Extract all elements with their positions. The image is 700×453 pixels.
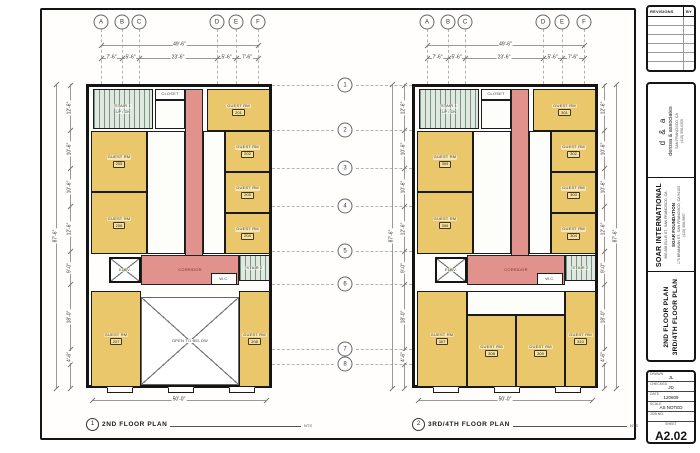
plan-3rd-4th-floor-bath-bottom xyxy=(467,291,565,315)
dim-side-seg-label: 18'-0" xyxy=(68,309,73,324)
plan-2nd-floor-stair-1: STAIR 1UP / DN xyxy=(93,89,153,129)
cap-scale: NTS xyxy=(630,423,638,428)
client-phone: (415) 358-9897 xyxy=(682,181,686,269)
bay-window xyxy=(555,387,581,393)
plan-2nd-floor-guest-rm-207: GUEST RM207 xyxy=(91,291,141,387)
plan-3rd-4th-floor-bath-top xyxy=(481,100,511,129)
job-row: JOB NO. xyxy=(648,412,694,422)
dim-side-seg-label: 10'-6" xyxy=(402,142,407,157)
grid-bubble-row-6: 6 xyxy=(338,277,353,292)
revision-row xyxy=(648,62,694,71)
caption-line xyxy=(513,425,627,427)
grid-bubble-col-F: F xyxy=(251,15,266,30)
plan-3rd-4th-floor-bath-left xyxy=(473,131,511,254)
plan-3rd-4th-floor-stair-2: STAIR 2 xyxy=(565,255,596,281)
dim-bottom-overall-label: 50'-0" xyxy=(172,398,187,403)
rlabel: ELEV. xyxy=(444,268,458,272)
revision-row xyxy=(648,53,694,62)
plan-3rd-4th-floor-guest-rm-310: GUEST RM310 xyxy=(565,291,596,387)
grid-row-leader xyxy=(272,251,334,252)
caption-line xyxy=(170,425,301,427)
rlabel: GUEST RM xyxy=(242,333,267,337)
plan-2nd-floor-wc: W.C. xyxy=(211,273,237,285)
caption-plan-3rd-4th-floor: 23RD/4TH FLOOR PLANNTS xyxy=(412,418,638,430)
rlabel: CLOSET xyxy=(160,92,179,96)
dim-side-seg-label: 18'-0" xyxy=(602,309,607,324)
plan-3rd-4th-floor-wc: W.C. xyxy=(537,273,563,285)
grid-bubble-row-4: 4 xyxy=(338,199,353,214)
caption-number: 2 xyxy=(412,418,425,431)
plan-3rd-4th-floor-guest-rm-304: GUEST RM304 xyxy=(551,213,596,254)
dim-side-overall-label: 87'-6" xyxy=(54,229,59,244)
rnum: 202 xyxy=(241,151,254,158)
rnum: 205 xyxy=(113,161,126,168)
dim-side-seg-label: 10'-6" xyxy=(68,142,73,157)
drawn-row: DRAWN JL xyxy=(648,372,694,382)
dim-side-seg-label: 4'-6" xyxy=(68,351,73,363)
grid-bubble-col-F: F xyxy=(577,15,592,30)
dim-side-seg-label: 10'-6" xyxy=(68,180,73,195)
sheet-number-area: SHEET A2.02 OF SHEETS xyxy=(648,422,694,444)
bay-window xyxy=(494,387,520,393)
plan-3rd-4th-floor-elevator: ELEV. xyxy=(435,257,467,283)
rlabel: GUEST RM xyxy=(561,227,586,231)
dim-side-seg-label: 18'-0" xyxy=(402,309,407,324)
dim-side-seg-label: 12'-6" xyxy=(602,221,607,236)
rlabel: GUEST RM xyxy=(568,333,593,337)
rnum: 309 xyxy=(534,350,547,357)
rlabel: STAIR 2 xyxy=(245,266,263,270)
rlabel: GUEST RM xyxy=(528,345,553,349)
client-name: SOAR FOUNDATION xyxy=(671,181,676,269)
rnum: 207 xyxy=(110,338,123,345)
plan-2nd-floor-bath-left xyxy=(147,131,185,254)
rlabel: CORRIDOR xyxy=(177,268,202,272)
revision-row xyxy=(648,26,694,35)
dim-top-seg-label: 7'-6" xyxy=(567,56,579,61)
rlabel: GUEST RM xyxy=(552,104,577,108)
plan-3rd-4th-floor-stair-1: STAIR 1UP / DN xyxy=(419,89,479,129)
job-label: JOB NO. xyxy=(650,412,664,416)
rlabel: GUEST RM xyxy=(430,333,455,337)
plan-2nd-floor-bath-top xyxy=(155,100,185,129)
bay-window xyxy=(107,387,133,393)
rnum: 208 xyxy=(248,338,261,345)
rlabel: GUEST RM xyxy=(433,217,458,221)
rlabel: GUEST RM xyxy=(107,155,132,159)
client-address: 170 BRANNAN ST., SAN FRANCISCO, CA 94103 xyxy=(677,181,681,269)
plan-2nd-floor-bath-right xyxy=(203,131,225,254)
rlabel: CLOSET xyxy=(486,92,505,96)
rnum: 306 xyxy=(439,222,452,229)
firm-name: derosa & associates xyxy=(668,87,674,175)
grid-row-leader xyxy=(272,130,334,131)
rlabel: GUEST RM xyxy=(433,155,458,159)
grid-bubble-row-3: 3 xyxy=(338,161,353,176)
cap-text: 3RD/4TH FLOOR PLAN xyxy=(428,421,510,428)
rlabel: CORRIDOR xyxy=(503,268,528,272)
project-address: 860-868 ELLIS ST., SAN FRANCISCO, CA xyxy=(664,181,668,269)
grid-row-leader xyxy=(272,284,334,285)
rlabel: W.C. xyxy=(544,277,555,281)
rnum: 201 xyxy=(232,109,245,116)
plan-3rd-4th-floor-bath-right xyxy=(529,131,551,254)
plan-3rd-4th-floor-guest-rm-302: GUEST RM302 xyxy=(551,131,596,172)
grid-bubble-col-A: A xyxy=(420,15,435,30)
grid-row-leader xyxy=(272,349,334,350)
rnum: 302 xyxy=(567,151,580,158)
sheet-title-section: 2ND FLOOR PLAN 3RD/4TH FLOOR PLAN xyxy=(648,272,694,362)
plan-2nd-floor-guest-rm-202: GUEST RM202 xyxy=(225,131,270,172)
dim-side-seg-label: 12'-6" xyxy=(402,221,407,236)
plan-2nd-floor-guest-rm-206: GUEST RM206 xyxy=(91,192,147,254)
dim-side-seg-label: 9'-0" xyxy=(402,262,407,274)
revisions-header-label: REVISIONS xyxy=(648,7,684,16)
plan-2nd-floor-guest-rm-201: GUEST RM201 xyxy=(207,89,270,131)
dim-side-seg-label: 9'-0" xyxy=(68,262,73,274)
dim-side-seg-label: 12'-6" xyxy=(602,100,607,115)
rsub: UP / DN xyxy=(116,110,131,114)
grid-bubble-row-1: 1 xyxy=(338,78,353,93)
revision-row xyxy=(648,17,694,26)
grid-row-leader xyxy=(272,85,334,86)
sheet-title-line1: 2ND FLOOR PLAN xyxy=(662,273,671,361)
plan-2nd-floor-guest-rm-205: GUEST RM205 xyxy=(91,131,147,192)
revision-row xyxy=(648,71,694,72)
revision-row xyxy=(648,35,694,44)
caption-plan-2nd-floor: 12ND FLOOR PLANNTS xyxy=(86,418,312,430)
dim-top-seg-label: 23'-6" xyxy=(497,56,512,61)
rlabel: STAIR 2 xyxy=(571,266,589,270)
checked-row: CHECKED JD xyxy=(648,382,694,392)
dim-side-seg-label: 10'-6" xyxy=(402,180,407,195)
rlabel: GUEST RM xyxy=(107,217,132,221)
issue-block: DRAWN JL CHECKED JD DATE 120609 SCALE AS… xyxy=(646,370,696,444)
sheet-number-label: SHEET xyxy=(648,422,694,426)
dim-side-seg-label: 9'-0" xyxy=(602,262,607,274)
date-row: DATE 120609 xyxy=(648,392,694,402)
title-block: d & a derosa & associates SAN FRANCISCO,… xyxy=(646,82,696,362)
scale-value: AS NOTED xyxy=(648,405,694,410)
date-value: 120609 xyxy=(648,395,694,400)
rlabel: GUEST RM xyxy=(561,186,586,190)
dim-side-seg-label: 4'-6" xyxy=(602,351,607,363)
rnum: 203 xyxy=(241,192,254,199)
rnum: 305 xyxy=(439,161,452,168)
revisions-block: REVISIONS BY xyxy=(646,5,696,72)
dim-side-overall-label: 87'-6" xyxy=(390,229,395,244)
plan-3rd-4th-floor-guest-rm-303: GUEST RM303 xyxy=(551,172,596,213)
dim-top-seg-label: 7'-6" xyxy=(106,56,118,61)
dim-side-seg-label: 10'-6" xyxy=(602,142,607,157)
dim-side-seg-label: 10'-6" xyxy=(602,180,607,195)
dim-side-seg-label: 12'-6" xyxy=(68,221,73,236)
plan-3rd-4th-floor-guest-rm-308: GUEST RM308 xyxy=(467,315,516,387)
dim-top-overall-label: 49'-6" xyxy=(498,43,513,48)
firm-contact-line2: (415) 398-0305 xyxy=(680,87,684,175)
dim-top-seg-label: 5'-6" xyxy=(451,56,463,61)
dim-top-seg-label: 5'-6" xyxy=(125,56,137,61)
rlabel: OPEN TO BELOW xyxy=(171,339,209,343)
plan-2nd-floor: STAIR 1UP / DNCLOSETCORRIDORGUEST RM201G… xyxy=(86,84,272,388)
rnum: 303 xyxy=(567,192,580,199)
plan-3rd-4th-floor-guest-rm-305: GUEST RM305 xyxy=(417,131,473,192)
firm-contact-line1: SAN FRANCISCO, CA xyxy=(675,87,679,175)
caption-number: 1 xyxy=(86,418,99,431)
grid-bubble-col-B: B xyxy=(115,15,130,30)
rlabel: GUEST RM xyxy=(561,145,586,149)
bay-window xyxy=(229,387,255,393)
rnum: 301 xyxy=(558,109,571,116)
rnum: 206 xyxy=(113,222,126,229)
dim-bottom-overall-label: 50'-0" xyxy=(498,398,513,403)
grid-bubble-col-B: B xyxy=(441,15,456,30)
rlabel: ELEV. xyxy=(118,268,132,272)
revisions-header: REVISIONS BY xyxy=(648,7,694,17)
grid-bubble-col-D: D xyxy=(536,15,551,30)
grid-bubble-col-E: E xyxy=(555,15,570,30)
grid-bubble-row-7: 7 xyxy=(338,342,353,357)
plan-2nd-floor-stair-2: STAIR 2 xyxy=(239,255,270,281)
project-name: SOAR INTERNATIONAL xyxy=(656,181,663,269)
rnum: 304 xyxy=(567,233,580,240)
plan-2nd-floor-guest-rm-203: GUEST RM203 xyxy=(225,172,270,213)
rlabel: GUEST RM xyxy=(235,227,260,231)
rlabel: GUEST RM xyxy=(479,345,504,349)
rlabel: GUEST RM xyxy=(226,104,251,108)
plan-2nd-floor-guest-rm-204: GUEST RM204 xyxy=(225,213,270,254)
grid-bubble-col-E: E xyxy=(229,15,244,30)
dim-top-seg-label: 5'-6" xyxy=(547,56,559,61)
dim-side-seg-label: 12'-6" xyxy=(68,100,73,115)
rlabel: GUEST RM xyxy=(235,145,260,149)
plan-2nd-floor-closet: CLOSET xyxy=(155,89,185,100)
grid-row-leader xyxy=(272,364,334,365)
plan-3rd-4th-floor-guest-rm-309: GUEST RM309 xyxy=(516,315,565,387)
grid-bubble-row-8: 8 xyxy=(338,357,353,372)
grid-row-leader xyxy=(272,206,334,207)
revisions-by-label: BY xyxy=(684,9,694,14)
dim-top-seg-label: 7'-6" xyxy=(432,56,444,61)
rnum: 308 xyxy=(485,350,498,357)
rnum: 307 xyxy=(436,338,449,345)
revision-row xyxy=(648,44,694,53)
rlabel: GUEST RM xyxy=(104,333,129,337)
cap-text: 2ND FLOOR PLAN xyxy=(102,421,167,428)
dim-side-overall-label: 87'-6" xyxy=(614,229,619,244)
dim-top-seg-label: 23'-6" xyxy=(171,56,186,61)
grid-bubble-col-C: C xyxy=(132,15,147,30)
firm-section: d & a derosa & associates SAN FRANCISCO,… xyxy=(648,84,694,178)
rnum: 204 xyxy=(241,233,254,240)
drawing-sheet-page: REVISIONS BY d & a derosa & associates S… xyxy=(0,0,700,453)
plan-2nd-floor-open-to-below: OPEN TO BELOW xyxy=(141,297,239,385)
drawn-value: JL xyxy=(648,375,694,380)
dim-side-seg-label: 4'-6" xyxy=(402,351,407,363)
checked-value: JD xyxy=(648,385,694,390)
plan-3rd-4th-floor-guest-rm-301: GUEST RM301 xyxy=(533,89,596,131)
cap-scale: NTS xyxy=(304,423,312,428)
grid-row-leader xyxy=(272,168,334,169)
grid-bubble-col-D: D xyxy=(210,15,225,30)
grid-bubble-col-C: C xyxy=(458,15,473,30)
plan-2nd-floor-elevator: ELEV. xyxy=(109,257,141,283)
rnum: 310 xyxy=(574,338,587,345)
dim-top-seg-label: 5'-6" xyxy=(221,56,233,61)
dim-top-seg-label: 7'-6" xyxy=(241,56,253,61)
firm-logo: d & a xyxy=(658,87,667,175)
project-section: SOAR INTERNATIONAL 860-868 ELLIS ST., SA… xyxy=(648,178,694,272)
plan-3rd-4th-floor-guest-rm-306: GUEST RM306 xyxy=(417,192,473,254)
scale-row: SCALE AS NOTED xyxy=(648,402,694,412)
plan-3rd-4th-floor: STAIR 1UP / DNCLOSETCORRIDORGUEST RM301G… xyxy=(412,84,598,388)
sheet-title-line2: 3RD/4TH FLOOR PLAN xyxy=(671,273,680,361)
bay-window xyxy=(168,387,194,393)
plan-3rd-4th-floor-guest-rm-307: GUEST RM307 xyxy=(417,291,467,387)
dim-side-seg-label: 12'-6" xyxy=(402,100,407,115)
grid-bubble-col-A: A xyxy=(94,15,109,30)
plan-2nd-floor-guest-rm-208: GUEST RM208 xyxy=(239,291,270,387)
plan-3rd-4th-floor-closet: CLOSET xyxy=(481,89,511,100)
grid-bubble-row-5: 5 xyxy=(338,244,353,259)
dim-top-overall-label: 49'-6" xyxy=(172,43,187,48)
bay-window xyxy=(433,387,459,393)
rlabel: W.C. xyxy=(218,277,229,281)
rlabel: GUEST RM xyxy=(235,186,260,190)
grid-bubble-row-2: 2 xyxy=(338,123,353,138)
sheet-number: A2.02 xyxy=(648,429,694,443)
rsub: UP / DN xyxy=(442,110,457,114)
